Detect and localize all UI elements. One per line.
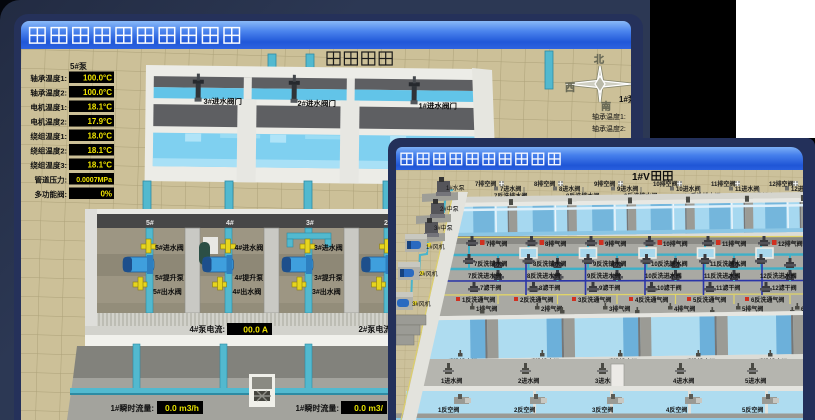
svg-text:8排气阀: 8排气阀: [545, 240, 566, 248]
svg-text:2排气阀: 2排气阀: [541, 305, 562, 313]
svg-text:5#进水阀: 5#进水阀: [155, 243, 184, 252]
svg-text:4#提升泵: 4#提升泵: [235, 273, 264, 282]
svg-text:1排气阀: 1排气阀: [476, 305, 497, 313]
svg-text:5#泵: 5#泵: [70, 62, 87, 71]
svg-text:1#V: 1#V: [632, 172, 650, 183]
svg-text:轴承温度1:: 轴承温度1:: [592, 112, 626, 121]
svg-text:12进水阀: 12进水阀: [791, 185, 803, 193]
svg-text:2#进水阀门: 2#进水阀门: [297, 98, 335, 108]
svg-text:7排空阀: 7排空阀: [475, 180, 496, 188]
svg-text:5#: 5#: [146, 220, 154, 227]
svg-text:11反洗进水阀: 11反洗进水阀: [704, 272, 740, 280]
svg-text:3#出水阀: 3#出水阀: [312, 287, 341, 296]
svg-text:0.0 m3/h: 0.0 m3/h: [165, 403, 199, 413]
svg-text:北: 北: [594, 53, 604, 66]
svg-text:4反洗通气阀: 4反洗通气阀: [635, 296, 668, 304]
svg-text:0.0007MPa: 0.0007MPa: [76, 177, 112, 184]
svg-text:1#瞬时流量:: 1#瞬时流量:: [110, 403, 154, 413]
svg-text:多功能阀:: 多功能阀:: [35, 189, 68, 199]
svg-text:4#出水阀: 4#出水阀: [233, 287, 262, 296]
svg-text:1#水泵: 1#水泵: [446, 184, 465, 192]
svg-text:管道压力:: 管道压力:: [35, 175, 68, 185]
svg-text:4#进水阀: 4#进水阀: [235, 243, 264, 252]
svg-text:8进水阀: 8进水阀: [559, 185, 580, 193]
svg-text:7反洗铺水阀: 7反洗铺水阀: [474, 260, 507, 268]
svg-text:3#风机: 3#风机: [412, 300, 431, 308]
svg-text:1反洗通气阀: 1反洗通气阀: [462, 296, 495, 304]
svg-text:12排空阀: 12排空阀: [769, 180, 794, 188]
svg-text:1#瞬时流量:: 1#瞬时流量:: [295, 403, 339, 413]
svg-text:轴承温度2:: 轴承温度2:: [592, 124, 626, 133]
svg-text:2进水阀: 2进水阀: [518, 377, 539, 385]
svg-text:4排气阀: 4排气阀: [674, 305, 695, 313]
svg-text:轴承温度2:: 轴承温度2:: [30, 88, 67, 98]
svg-text:12反洗进水阀: 12反洗进水阀: [760, 272, 797, 280]
svg-text:5进水阀: 5进水阀: [745, 377, 766, 385]
svg-text:12排气阀: 12排气阀: [778, 240, 803, 248]
svg-text:11反洗铺水阀: 11反洗铺水阀: [710, 260, 746, 268]
svg-text:11排气阀: 11排气阀: [722, 240, 746, 248]
svg-text:3排气阀: 3排气阀: [609, 305, 630, 313]
svg-text:3#中泵: 3#中泵: [434, 224, 453, 232]
svg-text:0%: 0%: [100, 190, 112, 199]
svg-text:0.0 m3/: 0.0 m3/: [354, 403, 383, 413]
svg-text:18.1°C: 18.1°C: [87, 103, 112, 112]
svg-text:18.0°C: 18.0°C: [87, 132, 112, 141]
svg-text:9反洗进水阀: 9反洗进水阀: [587, 272, 620, 280]
svg-text:12滤干阀: 12滤干阀: [772, 284, 797, 292]
svg-text:18.1°C: 18.1°C: [87, 146, 112, 155]
svg-text:4#泵电流:: 4#泵电流:: [189, 324, 225, 334]
svg-text:1#进水阀门: 1#进水阀门: [418, 100, 456, 110]
svg-text:2#中泵: 2#中泵: [440, 205, 459, 213]
svg-text:3反洗通气阀: 3反洗通气阀: [578, 296, 611, 304]
svg-text:7排气阀: 7排气阀: [486, 240, 507, 248]
svg-text:3#提升泵: 3#提升泵: [314, 273, 343, 282]
svg-text:9排气阀: 9排气阀: [605, 240, 626, 248]
svg-text:7反洗进水阀: 7反洗进水阀: [468, 272, 501, 280]
svg-text:10反洗进水阀: 10反洗进水阀: [645, 272, 682, 280]
svg-text:3反空阀: 3反空阀: [592, 406, 613, 414]
svg-text:绕组温度1:: 绕组温度1:: [30, 131, 67, 141]
svg-text:6反洗通气阀: 6反洗通气阀: [751, 296, 784, 304]
svg-text:1反空阀: 1反空阀: [438, 406, 459, 414]
svg-text:绕组温度2:: 绕组温度2:: [30, 146, 67, 156]
svg-text:5#提升泵: 5#提升泵: [155, 273, 184, 282]
svg-text:9滤干阀: 9滤干阀: [599, 284, 620, 292]
svg-text:11进水阀: 11进水阀: [735, 185, 759, 193]
svg-text:100.0°C: 100.0°C: [83, 74, 112, 83]
svg-text:8反洗铺水阀: 8反洗铺水阀: [533, 260, 566, 268]
svg-text:电机温度1:: 电机温度1:: [30, 102, 67, 112]
svg-text:5反空阀: 5反空阀: [742, 406, 763, 414]
svg-text:100.0°C: 100.0°C: [83, 88, 112, 97]
svg-text:3#: 3#: [306, 220, 314, 227]
svg-text:10进水阀: 10进水阀: [676, 185, 701, 193]
svg-text:18.1°C: 18.1°C: [87, 161, 112, 170]
svg-text:1#风机: 1#风机: [426, 243, 445, 251]
svg-text:8反洗进水阀: 8反洗进水阀: [527, 272, 560, 280]
svg-text:西: 西: [565, 82, 575, 94]
svg-text:1进水阀: 1进水阀: [441, 377, 462, 385]
svg-text:电机温度2:: 电机温度2:: [30, 117, 67, 127]
svg-text:00.0 A: 00.0 A: [243, 325, 268, 335]
svg-text:10反洗铺水阀: 10反洗铺水阀: [651, 260, 688, 268]
svg-text:5反洗通气阀: 5反洗通气阀: [693, 296, 726, 304]
svg-text:4#: 4#: [226, 220, 234, 227]
svg-text:2反洗通气阀: 2反洗通气阀: [520, 296, 553, 304]
svg-text:3#进水阀: 3#进水阀: [314, 243, 343, 252]
svg-text:4进水阀: 4进水阀: [673, 377, 694, 385]
svg-text:10排气阀: 10排气阀: [663, 240, 688, 248]
svg-text:3#进水阀门: 3#进水阀门: [204, 96, 242, 106]
svg-text:8排空阀: 8排空阀: [534, 180, 555, 188]
svg-text:2反空阀: 2反空阀: [514, 406, 535, 414]
svg-text:轴承温度1:: 轴承温度1:: [30, 73, 67, 83]
svg-text:南: 南: [601, 100, 611, 113]
svg-text:10滤干阀: 10滤干阀: [657, 284, 682, 292]
svg-text:7进水阀: 7进水阀: [500, 185, 521, 193]
svg-text:7滤干阀: 7滤干阀: [480, 284, 501, 292]
svg-text:9反洗铺水阀: 9反洗铺水阀: [593, 260, 626, 268]
svg-text:绕组温度3:: 绕组温度3:: [30, 160, 67, 170]
svg-text:9进水阀: 9进水阀: [617, 185, 638, 193]
svg-text:5#出水阀: 5#出水阀: [153, 287, 182, 296]
svg-text:11滤干阀: 11滤干阀: [716, 284, 740, 292]
svg-text:8滤干阀: 8滤干阀: [539, 284, 560, 292]
svg-text:4反空阀: 4反空阀: [666, 406, 687, 414]
svg-text:2#风机: 2#风机: [419, 270, 438, 278]
svg-text:17.9°C: 17.9°C: [87, 117, 112, 126]
svg-text:1#泵: 1#泵: [619, 95, 631, 104]
